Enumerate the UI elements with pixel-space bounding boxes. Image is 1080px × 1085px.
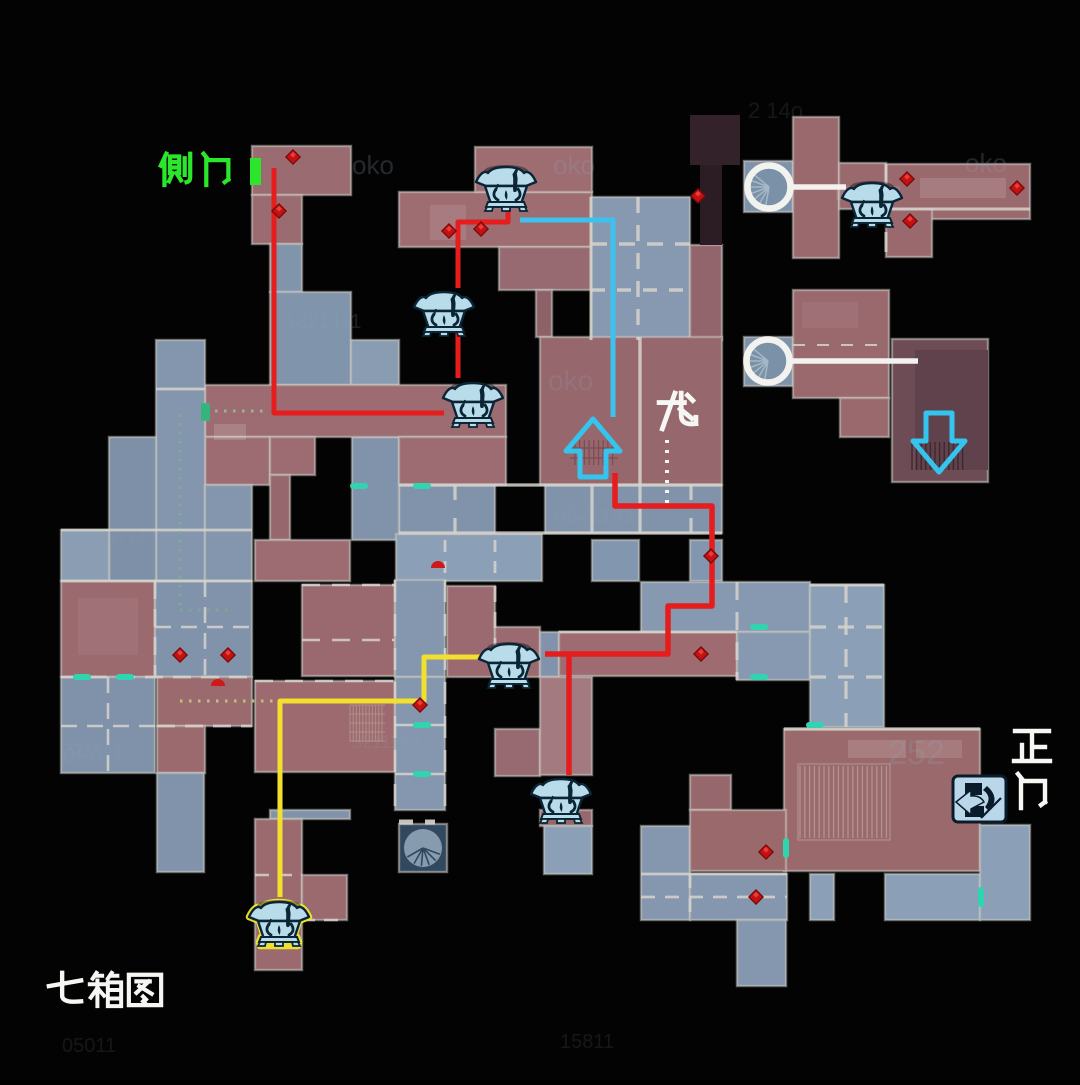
svg-text:oko: oko (548, 365, 593, 396)
svg-text:1321411: 1321411 (285, 311, 361, 333)
svg-text:oko: oko (352, 150, 394, 180)
svg-text:oko: oko (965, 148, 1007, 178)
svg-text:252: 252 (888, 734, 945, 772)
svg-text:15811: 15811 (560, 1031, 614, 1053)
svg-text:321141: 321141 (64, 740, 123, 760)
svg-text:3211150: 3211150 (352, 732, 419, 752)
svg-text:oko: oko (553, 150, 595, 180)
svg-text:0501141: 0501141 (85, 529, 158, 550)
svg-text:2 14o: 2 14o (748, 98, 803, 123)
svg-text:05011: 05011 (62, 1035, 116, 1057)
